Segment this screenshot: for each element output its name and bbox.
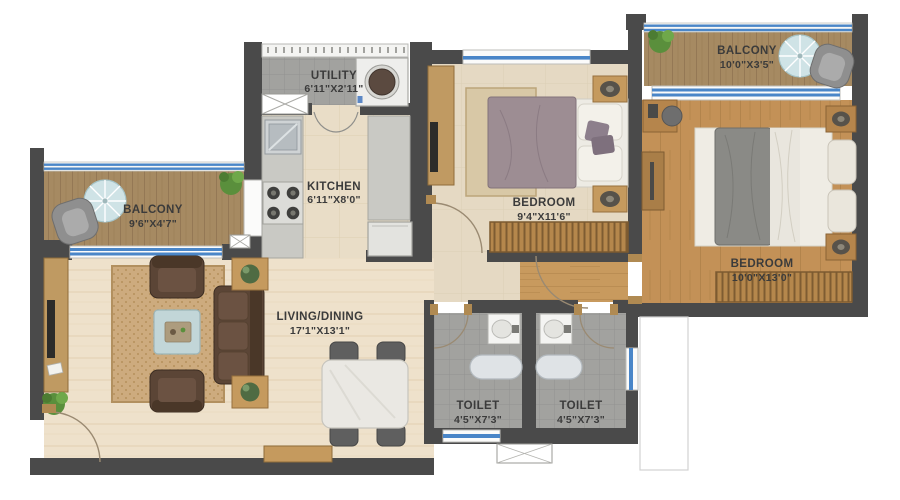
balcony-left-railing <box>44 162 244 171</box>
side-table <box>232 376 268 408</box>
bathtub <box>470 355 522 379</box>
balcony-right-dims: 10'0"X3'5" <box>720 59 774 71</box>
floor-plan: UTILITY 6'11"X2'11" KITCHEN 6'11"X8'0" B… <box>0 0 900 500</box>
washbasin <box>488 314 520 344</box>
wall <box>432 50 463 64</box>
wall <box>626 14 646 30</box>
bedroom1-bed <box>488 97 628 188</box>
toilet2-label: TOILET <box>559 400 602 412</box>
door-frame <box>464 304 472 315</box>
shoe-cabinet <box>264 446 332 462</box>
wall <box>30 458 434 475</box>
wall <box>30 148 44 420</box>
duct-shaft <box>497 444 552 463</box>
door-frame <box>426 195 436 204</box>
gas-stove <box>263 182 303 224</box>
balcony-left-label: BALCONY <box>123 204 183 216</box>
desk-chair <box>662 106 682 126</box>
balcony-left-dims: 9'6"X4'7" <box>129 218 177 230</box>
tv <box>430 122 438 172</box>
armchair <box>150 256 204 298</box>
plant <box>241 383 260 402</box>
door-frame <box>42 404 56 413</box>
bathtub <box>536 355 582 379</box>
washing-machine <box>356 58 408 106</box>
bedroom2-desk <box>643 100 682 132</box>
wall <box>424 300 434 444</box>
refrigerator <box>368 222 412 256</box>
toilet2-window <box>626 348 638 390</box>
wall <box>626 390 638 444</box>
kitchen-label: KITCHEN <box>307 181 361 193</box>
living-dining-dims: 17'1"X13'1" <box>290 325 350 337</box>
side-table <box>232 258 268 290</box>
bedroom1-tv-unit <box>428 66 454 185</box>
duct-shaft <box>262 94 308 114</box>
bedroom2-bed <box>695 128 856 246</box>
kitchen-counter-right <box>368 116 410 220</box>
kitchen-sink <box>265 120 301 154</box>
washbasin <box>540 314 572 344</box>
nightstand <box>593 76 627 102</box>
toilet1-dims: 4'5"X7'3" <box>454 414 502 426</box>
kitchen-dims: 6'11"X8'0" <box>307 194 361 206</box>
toilet2-dims: 4'5"X7'3" <box>557 414 605 426</box>
tv <box>47 300 55 358</box>
exterior-outline <box>640 317 688 470</box>
nightstand <box>826 106 856 132</box>
wall <box>628 16 642 258</box>
bedroom1-label: BEDROOM <box>513 197 576 209</box>
plant <box>241 265 260 284</box>
wall <box>522 300 536 444</box>
living-tv-unit <box>44 258 68 392</box>
door-frame <box>430 304 438 315</box>
bedroom2-cabinet <box>642 152 664 210</box>
bedroom2-window <box>652 86 840 100</box>
bedroom2-dims: 10'0"X13'0" <box>732 272 792 284</box>
pillow <box>828 140 856 184</box>
utility-grill <box>262 44 408 57</box>
sofa <box>214 286 264 384</box>
balcony-right-label: BALCONY <box>717 45 777 57</box>
toilet1-label: TOILET <box>456 400 499 412</box>
nightstand <box>826 234 856 260</box>
utility-dims: 6'11"X2'11" <box>304 83 363 95</box>
utility-label: UTILITY <box>311 70 357 82</box>
accent-cushion <box>591 135 615 156</box>
bedroom2-label: BEDROOM <box>731 258 794 270</box>
bedroom1-window <box>463 50 590 64</box>
coffee-table <box>154 310 200 354</box>
duct-shaft <box>230 235 250 248</box>
floor-plan-canvas: UTILITY 6'11"X2'11" KITCHEN 6'11"X8'0" B… <box>0 0 900 500</box>
nightstand <box>593 186 627 212</box>
door-frame <box>610 304 618 315</box>
door-frame <box>574 304 582 315</box>
wall <box>628 303 868 317</box>
balcony-right-railing <box>644 23 852 32</box>
pillow <box>828 190 856 232</box>
kitchen-window <box>244 180 262 236</box>
armchair <box>150 370 204 412</box>
bedroom1-dims: 9'4"X11'6" <box>517 211 571 223</box>
toilet1-window <box>443 430 500 442</box>
door-frame <box>628 296 642 304</box>
bedroom1-wardrobe <box>490 222 628 252</box>
living-dining-label: LIVING/DINING <box>277 311 364 323</box>
door-frame <box>628 254 642 262</box>
